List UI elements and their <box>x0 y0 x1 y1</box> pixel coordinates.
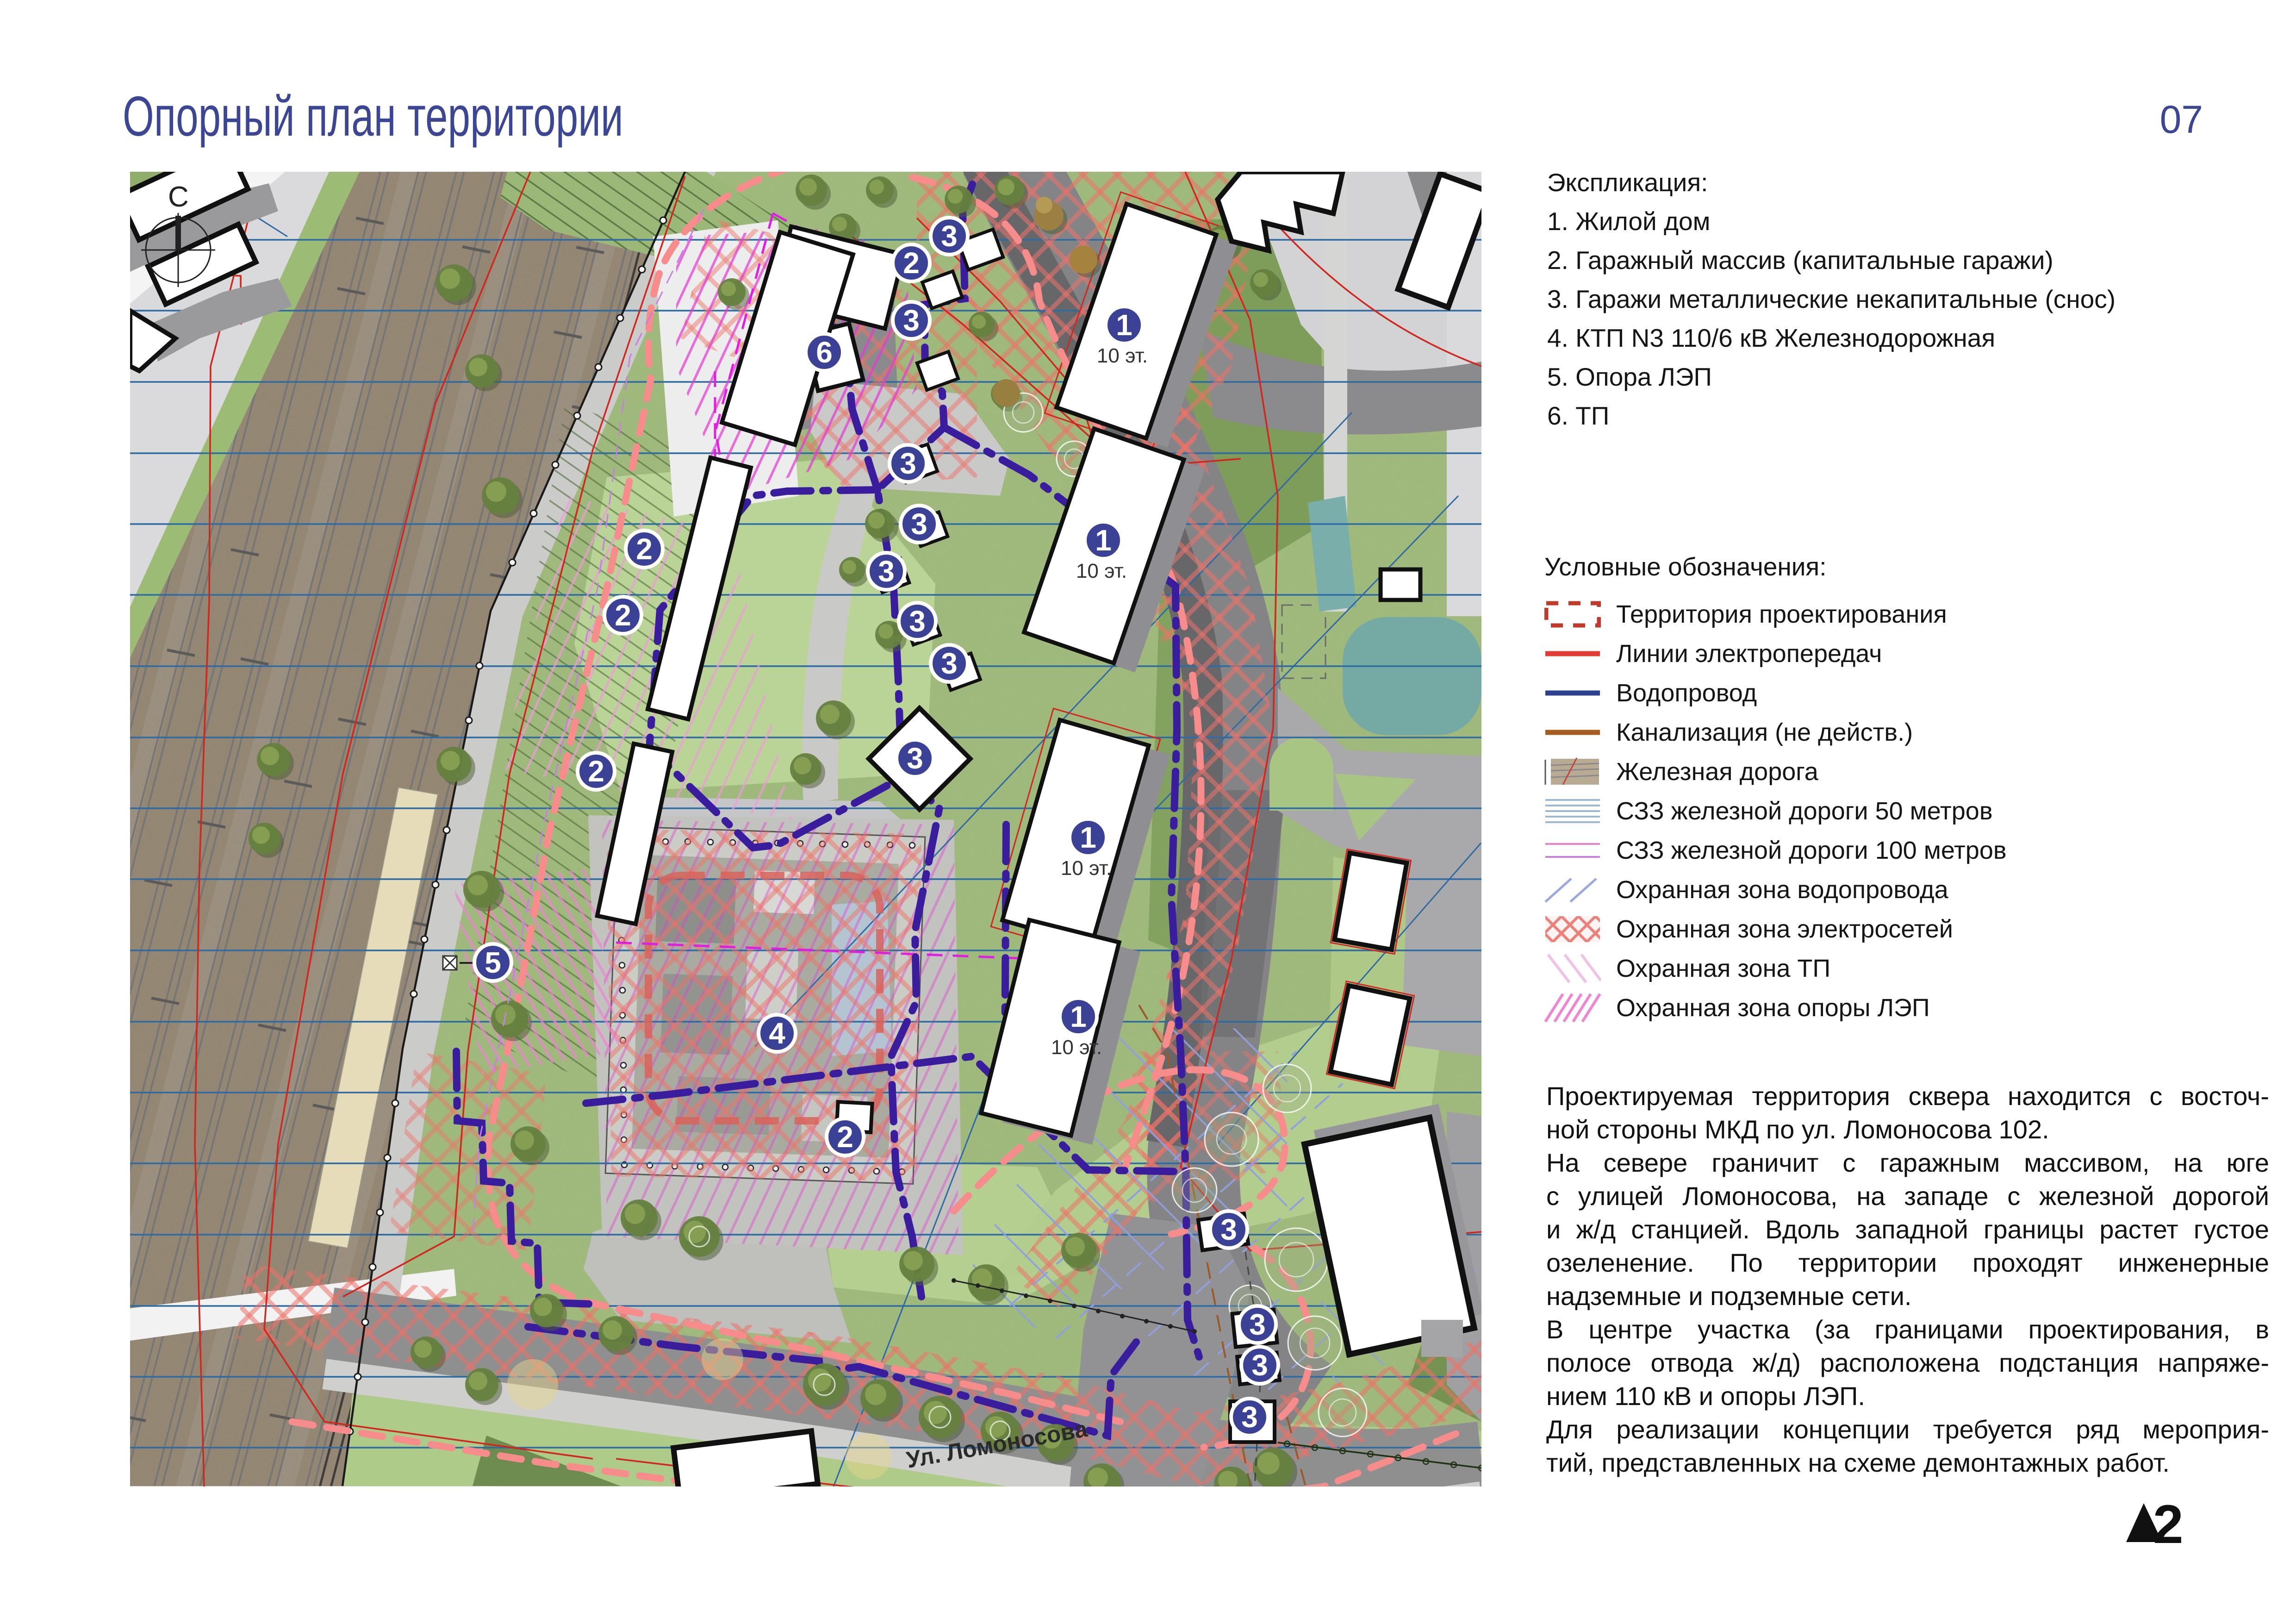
svg-text:2: 2 <box>2153 1497 2184 1555</box>
svg-text:5: 5 <box>485 946 501 979</box>
svg-text:2: 2 <box>636 532 653 566</box>
svg-text:4: 4 <box>769 1017 785 1050</box>
svg-text:3: 3 <box>911 507 927 541</box>
svg-text:2: 2 <box>903 246 920 280</box>
svg-text:1: 1 <box>1070 1000 1087 1033</box>
svg-text:3: 3 <box>903 304 920 337</box>
svg-text:С: С <box>168 181 189 213</box>
svg-text:2: 2 <box>837 1120 853 1154</box>
svg-text:10 эт.: 10 эт. <box>1076 560 1127 582</box>
svg-text:1: 1 <box>1116 308 1132 342</box>
svg-text:1: 1 <box>1095 524 1112 557</box>
svg-text:3: 3 <box>941 647 958 680</box>
svg-text:6: 6 <box>816 336 833 369</box>
svg-text:2: 2 <box>588 755 604 788</box>
svg-text:3: 3 <box>909 605 926 638</box>
svg-text:3: 3 <box>941 219 958 253</box>
svg-text:10 эт.: 10 эт. <box>1097 344 1148 367</box>
svg-text:3: 3 <box>878 555 895 588</box>
svg-text:2: 2 <box>615 599 631 632</box>
svg-text:10 эт.: 10 эт. <box>1061 857 1112 880</box>
svg-text:3: 3 <box>1241 1400 1258 1434</box>
svg-text:3: 3 <box>1251 1349 1268 1382</box>
svg-text:3: 3 <box>900 447 916 480</box>
svg-text:1: 1 <box>1080 821 1096 854</box>
svg-text:3: 3 <box>1249 1308 1266 1341</box>
svg-text:10 эт.: 10 эт. <box>1051 1036 1102 1059</box>
svg-text:3: 3 <box>907 742 923 775</box>
svg-text:3: 3 <box>1220 1213 1237 1246</box>
